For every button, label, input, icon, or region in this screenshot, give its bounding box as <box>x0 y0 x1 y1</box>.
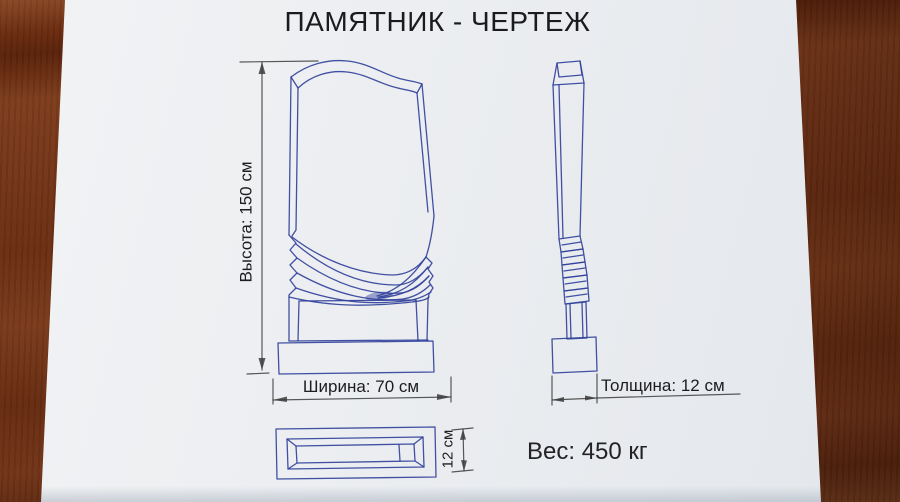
width-dimension-label: Ширина: 70 см <box>281 378 441 395</box>
arrow-down-icon <box>461 460 467 471</box>
plinth-height-dimension-label: 12 см <box>441 430 456 469</box>
monument-technical-drawing <box>0 0 900 502</box>
front-base-slab <box>278 341 434 374</box>
height-dimension-label: Высота: 150 см <box>238 161 255 282</box>
arrow-right-icon <box>585 396 597 401</box>
plinth-top-view-drawing <box>276 427 436 479</box>
side-view-drawing <box>552 61 597 373</box>
weight-label: Вес: 450 кг <box>527 440 648 464</box>
front-view-drawing <box>278 61 434 374</box>
arrow-down-icon <box>259 358 266 370</box>
arrow-left-icon <box>273 397 287 403</box>
drawing-title: ПАМЯТНИК - ЧЕРТЕЖ <box>255 8 620 36</box>
arrow-up-icon <box>460 429 466 440</box>
arrow-up-icon <box>259 62 266 74</box>
thickness-dimension-label: Толщина: 12 см <box>601 377 725 394</box>
photo-scene: ПАМЯТНИК - ЧЕРТЕЖ Высота: 150 см Ширина:… <box>0 0 900 502</box>
side-base-block <box>552 337 597 373</box>
